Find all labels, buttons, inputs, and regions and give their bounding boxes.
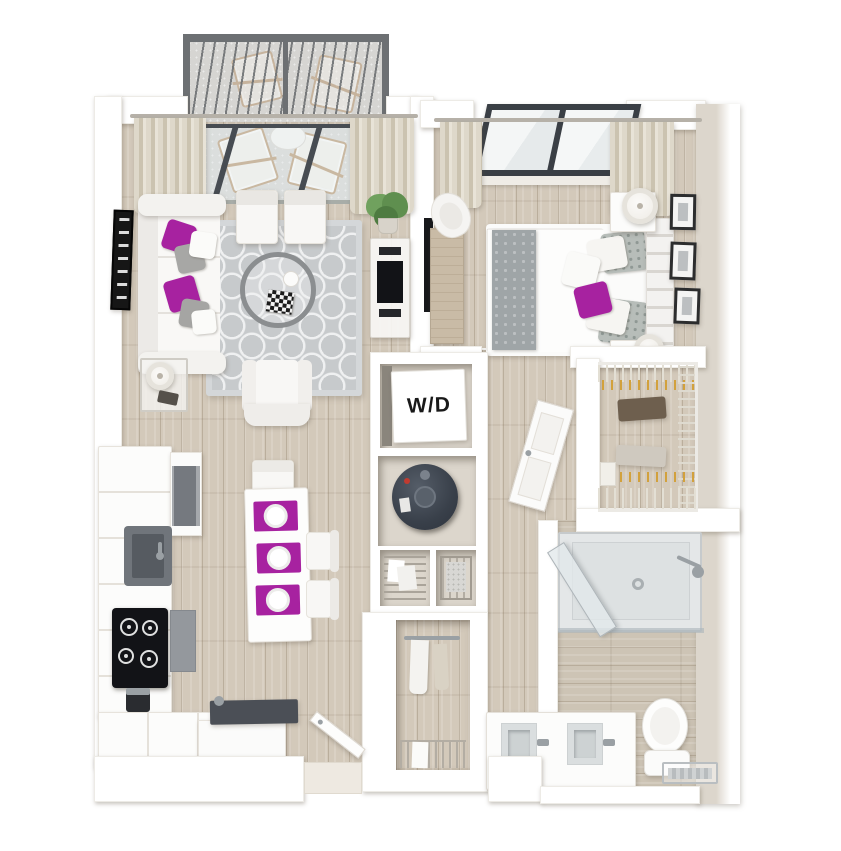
burner (142, 620, 158, 636)
burner (140, 650, 158, 668)
shower-head (692, 566, 704, 578)
heater-label-sticker (399, 497, 411, 512)
vanity-faucet (537, 739, 549, 746)
towel (668, 768, 712, 779)
heater-valve (404, 478, 410, 484)
kitchen-faucet-head (156, 552, 164, 560)
dining-chair (306, 578, 340, 620)
plant-pot (378, 218, 398, 234)
hanging-clothes-light (616, 445, 667, 468)
entry-closet-interior (396, 620, 470, 770)
door-knob (525, 449, 532, 456)
plate (266, 588, 291, 613)
toilet-lid-inner (650, 707, 680, 745)
exterior-wall-bottom (488, 756, 542, 802)
hanging-garment (433, 644, 449, 691)
floor-plan-render: W/D (0, 0, 841, 851)
vanity-faucet (603, 739, 615, 746)
tv (377, 261, 403, 303)
closet-shelf-bottom (598, 488, 698, 512)
exterior-wall-bottom (540, 786, 700, 804)
accent-chair-back (285, 191, 325, 205)
towel-rack (662, 762, 718, 784)
bedside-lamp (622, 188, 658, 224)
soundbar (379, 247, 401, 255)
shower-glass-panel (558, 628, 704, 633)
wire-shelf (400, 740, 466, 768)
media-console (370, 238, 410, 338)
dining-table (244, 487, 312, 643)
water-heater (392, 464, 458, 530)
door-knob (317, 719, 324, 726)
stored-papers (397, 565, 417, 591)
balcony-railing-post (283, 34, 288, 118)
kettle (214, 696, 224, 706)
chair-back (330, 578, 339, 620)
heater-pipe (420, 470, 430, 480)
cooktop (112, 608, 168, 688)
storage-niche (380, 550, 430, 606)
exterior-wall-right (696, 104, 740, 804)
closet-wall-left (576, 358, 600, 528)
washer-dryer-label: W/D (392, 370, 466, 442)
bed-runner (492, 230, 536, 350)
armchair-back (244, 404, 310, 426)
chair-seat (306, 532, 332, 570)
hanging-garment (409, 640, 429, 695)
refrigerator (172, 466, 200, 526)
wall-art-glyphs (116, 218, 129, 304)
washer-dryer: W/D (391, 369, 467, 444)
kitchen-sink (124, 526, 172, 586)
white-pillow (188, 230, 217, 259)
heater-cap (414, 486, 436, 508)
potted-plant (366, 192, 410, 234)
accent-chair-back (237, 191, 277, 205)
sofa-armrest (138, 194, 226, 216)
espresso-top (126, 688, 150, 695)
media-component (379, 309, 401, 317)
chair-back (330, 530, 339, 572)
plate (263, 504, 288, 529)
dishwasher-panel (170, 610, 196, 672)
picture-frame (669, 242, 696, 281)
storage-box (600, 462, 616, 486)
armchair (242, 356, 312, 426)
placemat (253, 500, 298, 531)
shower-drain (632, 578, 644, 590)
chess-board (266, 289, 295, 314)
burner (118, 648, 134, 664)
water-heater-niche (378, 456, 476, 546)
vanity-sink (567, 723, 603, 765)
picture-frame (673, 288, 700, 325)
candle (283, 271, 299, 287)
espresso-machine (126, 688, 150, 712)
accent-chair (284, 190, 326, 244)
wall-art (110, 210, 133, 311)
chair-seat (306, 580, 332, 618)
white-pillow (191, 309, 217, 335)
table-lamp (146, 362, 174, 390)
door-panel (517, 456, 551, 501)
coffee-table (240, 252, 316, 328)
placemat (256, 542, 301, 573)
sink-basin (508, 730, 530, 758)
placemat (256, 584, 301, 615)
plate (267, 546, 292, 571)
entry-threshold (304, 762, 362, 794)
door-panel (531, 412, 565, 455)
sink-basin (574, 730, 596, 758)
basket-niche (436, 550, 476, 606)
burner (120, 618, 138, 636)
accent-chair (236, 190, 278, 244)
hanging-towel (412, 742, 429, 769)
exterior-wall-bottom (94, 756, 304, 802)
chair-back (253, 461, 293, 472)
laundry-niche: W/D (380, 364, 472, 448)
bedroom-window-sill (468, 176, 628, 185)
hanging-clothes-dark (617, 396, 666, 421)
armchair-cushion (256, 360, 298, 408)
dining-chair (306, 530, 340, 572)
folded-towel (446, 562, 466, 592)
picture-frame (670, 194, 697, 230)
